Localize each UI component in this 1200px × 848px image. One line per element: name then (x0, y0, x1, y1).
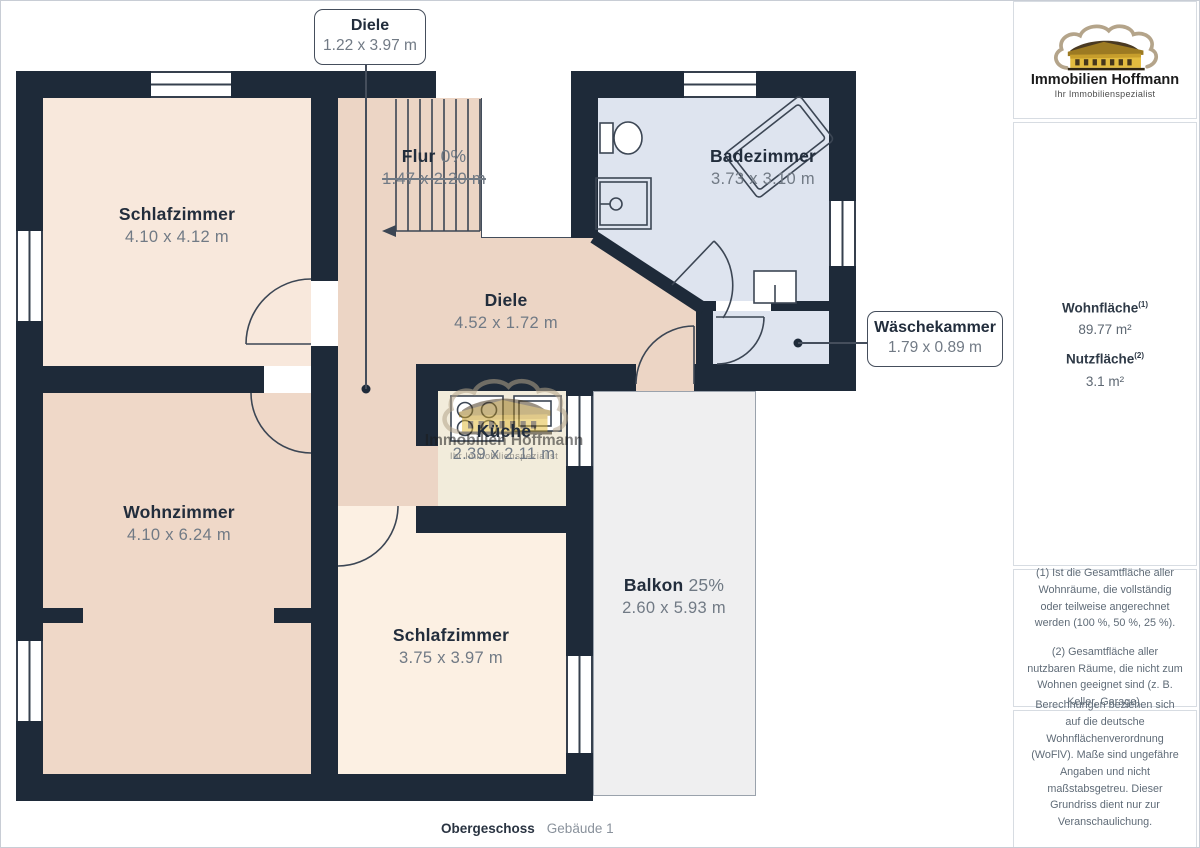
room-label-diele: Diele 4.52 x 1.72 m (454, 290, 558, 333)
sidebar-brand-card: Immobilien Hoffmann Ihr Immobilienspezia… (1013, 1, 1197, 119)
room-label-balkon: Balkon25% 2.60 x 5.93 m (622, 575, 726, 618)
door-wohnzimmer (251, 393, 311, 453)
floorplan-page: Immobilien Hoffmann Ihr Immobilienspezia… (0, 0, 1200, 848)
sidebar-disclaimer-card: Berechnungen beziehen sich auf die deuts… (1013, 710, 1197, 848)
stairs-arrow (382, 225, 396, 237)
stat-wohnflaeche: Wohnfläche(1) 89.77 m² (1062, 300, 1148, 338)
brand-name: Immobilien Hoffmann (1031, 72, 1179, 88)
floor-title: Obergeschoss (441, 821, 535, 836)
leader-line-diele (365, 65, 367, 389)
room-label-badezimmer: Badezimmer 3.73 x 3.10 m (710, 146, 816, 189)
room-label-schlafzimmer-2: Schlafzimmer 3.75 x 3.97 m (393, 625, 509, 668)
door-balkon (636, 326, 694, 384)
footer: ObergeschossGebäude 1 (441, 821, 614, 836)
leader-line-waeschekammer (798, 342, 867, 344)
room-label-kueche: Küche 2.39 x 2.11 m (453, 421, 556, 464)
building-title: Gebäude 1 (547, 821, 614, 836)
footnote-1: (1) Ist die Gesamtfläche aller Wohnräume… (1027, 565, 1183, 632)
door-schlafzimmer-2 (338, 506, 398, 566)
toilet-icon (600, 123, 613, 153)
room-label-wohnzimmer: Wohnzimmer 4.10 x 6.24 m (123, 502, 235, 545)
sidebar-stats-card: Wohnfläche(1) 89.77 m² Nutzfläche(2) 3.1… (1013, 122, 1197, 566)
disclaimer-text: Berechnungen beziehen sich auf die deuts… (1027, 697, 1183, 831)
room-label-flur: Flur0% 1.47 x 2.20 m (382, 146, 486, 189)
room-label-schlafzimmer-1: Schlafzimmer 4.10 x 4.12 m (119, 204, 235, 247)
callout-waeschekammer: Wäschekammer 1.79 x 0.89 m (867, 311, 1003, 367)
door-waeschekammer (716, 317, 764, 364)
stat-nutzflaeche: Nutzfläche(2) 3.1 m² (1066, 351, 1144, 389)
door-schlafzimmer-1 (246, 279, 311, 344)
callout-diele: Diele 1.22 x 3.97 m (314, 9, 426, 65)
sidebar-footnotes-card: (1) Ist die Gesamtfläche aller Wohnräume… (1013, 569, 1197, 707)
brand-tagline: Ihr Immobilienspezialist (1055, 89, 1156, 99)
